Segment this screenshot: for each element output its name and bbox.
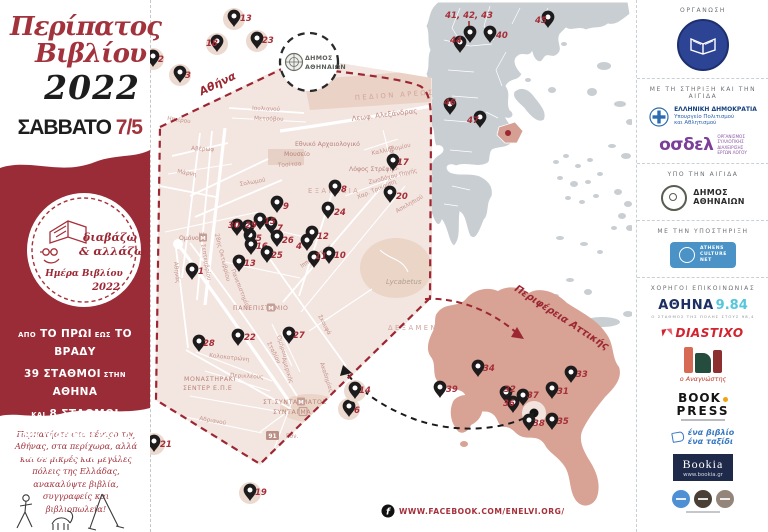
title-line2: Βιβλίου	[0, 41, 146, 68]
map-marker-pin: 23	[246, 30, 274, 52]
marker-number: 13	[244, 259, 256, 269]
athina984-logo: ΑΘΗΝΑ 9.84 Ο ΣΤΑΘΜΟΣ ΤΗΣ ΠΟΛΗΣ ΣΤΟΥΣ 98,…	[651, 298, 754, 319]
promo-line: ΚΑΙ 8 ΣΤΑΘΜΟΙ	[0, 403, 150, 421]
orange-dot-icon	[723, 397, 728, 402]
bookia-logo: Bookia www.bookia.gr	[673, 454, 734, 481]
marker-number: 2	[158, 55, 164, 65]
athens-location-dot	[505, 130, 511, 136]
tagline-bar	[681, 419, 725, 421]
event-date: ΣΑΒΒΑΤΟ 7/5	[0, 116, 146, 140]
marker-number: 38	[533, 419, 545, 429]
organizer-heading: ΟΡΓΑΝΩΣΗ	[680, 7, 726, 14]
anagnostis-mark-icon	[684, 347, 722, 373]
walking-people-sketch	[6, 490, 144, 532]
greek-cross-icon	[649, 107, 669, 127]
marker-number: 15	[264, 217, 276, 227]
street-label: Lycabetus	[386, 278, 422, 286]
promo-text: ΑΠΟ ΤΟ ΠΡΩΙ ΕΩΣ ΤΟ ΒΡΑΔΥ39 ΣΤΑΘΜΟΙ ΣΤΗΝ …	[0, 320, 150, 467]
badge-line4: 2022	[91, 282, 120, 293]
street-label: Μετσόβου	[254, 115, 284, 123]
map-marker-pin: 19	[239, 482, 267, 504]
marker-number: 27	[293, 331, 305, 341]
metro-icon: Μ	[298, 400, 303, 406]
city-of-athens-logo: ΔΗΜΟΣ ΑΘΗΝΑΙΩΝ	[661, 185, 744, 211]
poster-title: Περίπατος Βιβλίου 2022 ΣΑΒΒΑΤΟ 7/5	[0, 14, 146, 140]
street-label: ΣΤ.ΣΥΝΤΑΓΜΑΤΟΣ	[263, 399, 327, 406]
support-heading: ΜΕ ΤΗ ΣΤΗΡΙΞΗ ΚΑΙ ΤΗΝ ΑΙΓΙΔΑ	[637, 86, 768, 100]
city-seal-icon	[661, 185, 687, 211]
street-label: Ιουλιανού	[252, 105, 281, 113]
promo-line: ΓΕΜΑΤΟΙ ΒΙΒΛΙΑ!	[0, 445, 150, 463]
marker-number: 17	[397, 158, 409, 168]
marker-number: 10	[334, 251, 346, 261]
marker-number: 23	[262, 36, 274, 46]
promo-line: ΣΤΗΝ ΥΠΟΛΟΙΠΗ ΕΛΛΑΔΑ	[0, 424, 150, 442]
marker-number: 44	[449, 36, 462, 46]
map-marker-pin: 2	[150, 48, 164, 70]
radio-circles-logo	[672, 490, 734, 508]
osdel-logo: οσδελ ΟΡΓΑΝΙΣΜΟΣ ΣΥΛΛΟΓΙΚΗΣ ΔΙΑΧΕΙΡΙΣΗΣ …	[659, 134, 747, 156]
facebook-url: WWW.FACEBOOK.COM/ENELVI.ORG/	[399, 507, 565, 516]
marker-number: 1	[198, 267, 204, 277]
divider	[637, 220, 768, 221]
marker-number: 25	[271, 251, 283, 261]
divider	[637, 277, 768, 278]
blue-circle-icon	[672, 490, 690, 508]
marker-number: 29	[245, 221, 257, 231]
marker-number: 36	[503, 399, 515, 409]
divider	[637, 78, 768, 79]
map-panel: ΠΕΔΙΟΝ ΑΡΕΩΣΛεωφ. ΑλεξάνδραςΕθνικό Αρχαι…	[150, 0, 632, 532]
map-marker-pin: 21	[150, 433, 172, 455]
ena-vivlio-logo: ένα βιβλίο ένα ταξίδι	[672, 428, 734, 446]
marker-number: 14	[359, 386, 371, 396]
bookpress-line2: PRESS	[677, 405, 730, 417]
athina984-freq: 9.84	[716, 298, 748, 313]
diastixo-name: DIASTIXO	[675, 326, 743, 340]
marker-number: 3	[185, 71, 191, 81]
city-line2: ΑΘΗΝΑΙΩΝ	[693, 198, 744, 207]
street-label: Αβέρωφ	[191, 145, 215, 153]
title-line1: Περίπατος	[0, 14, 146, 41]
title-year: 2022	[0, 71, 146, 104]
marker-number: 9	[283, 202, 289, 212]
divider	[637, 163, 768, 164]
street-label: Εθνικό Αρχαιολογικό	[295, 140, 360, 148]
marker-number: 40	[495, 31, 508, 41]
athens-culture-net-logo: ATHENS CULTURE NET	[670, 242, 736, 268]
promo-line: 39 ΣΤΑΘΜΟΙ ΣΤΗΝ ΑΘΗΝΑ	[0, 363, 150, 400]
event-day: ΣΑΒΒΑΤΟ	[18, 116, 111, 139]
marker-number: 12	[317, 232, 329, 242]
ministry-logo: ΕΛΛΗΝΙΚΗ ΔΗΜΟΚΡΑΤΙΑ Υπουργείο Πολιτισμού…	[649, 106, 757, 127]
marker-number: 39	[446, 385, 458, 395]
book-walk-poster: διαβάζω & αλλάζω Ημέρα Βιβλίου 2022 Περί…	[0, 0, 768, 532]
marker-number: 31	[557, 387, 569, 397]
anagnostis-logo: ο Αναγνώστης	[680, 347, 727, 383]
marker-number: 32	[504, 385, 516, 395]
metro-icon: Μ	[268, 306, 273, 312]
street-label: Μουσείο	[284, 150, 310, 158]
marker-number: 33	[576, 370, 588, 380]
ministry-line1: ΕΛΛΗΝΙΚΗ ΔΗΜΟΚΡΑΤΙΑ	[674, 106, 757, 114]
marker-number: 46	[443, 98, 456, 108]
marker-number: 37	[527, 391, 539, 401]
osdel-line4: ΕΡΓΩΝ ΛΟΓΟΥ	[717, 150, 747, 155]
map-marker-pin: 14	[344, 380, 371, 402]
aegis-heading: ΥΠΟ ΤΗΝ ΑΙΓΙΔΑ	[668, 171, 739, 178]
open-book-icon	[689, 35, 717, 55]
bookpress-line1: BOOK	[678, 391, 721, 405]
book-icon	[662, 329, 673, 337]
marker-number: 4	[295, 242, 302, 252]
municipality-name-line2: ΑΘΗΝΑΙΩΝ	[305, 64, 346, 71]
support2-heading: ΜΕ ΤΗΝ ΥΠΟΣΤΗΡΙΞΗ	[657, 228, 748, 235]
street-label: ΜΟΝΑΣΤΗΡΑΚΙ	[184, 376, 236, 383]
athina984-name: ΑΘΗΝΑ	[658, 298, 713, 313]
map-marker-pin: 3	[169, 64, 191, 86]
attica-region-map: Περιφέρεια Αττικής 313233343536373839	[428, 283, 620, 506]
marker-number: 11	[315, 252, 327, 262]
marker-number: 22	[244, 333, 256, 343]
municipality-name-line1: ΔΗΜΟΣ	[305, 55, 333, 62]
bookpress-logo: BOOK PRESS	[677, 389, 730, 421]
diastixo-logo: DIASTIXO	[662, 326, 743, 340]
marker-number: 13	[240, 14, 252, 24]
ena-vivlio-line2: ένα ταξίδι	[688, 437, 734, 446]
bookia-name: Bookia	[683, 457, 724, 472]
ministry-line3: και Αθλητισμού	[674, 120, 757, 127]
osdel-name: οσδελ	[659, 135, 713, 155]
metro-icon: Μ	[200, 236, 205, 242]
marker-number: 21	[160, 440, 172, 450]
marker-number: 8	[341, 185, 347, 195]
athina984-tagline: Ο ΣΤΑΘΜΟΣ ΤΗΣ ΠΟΛΗΣ ΣΤΟΥΣ 98,4	[651, 314, 754, 319]
caption-bar	[686, 511, 720, 513]
marker-number: 24	[334, 208, 346, 218]
aegean-islands	[525, 17, 632, 327]
street-label: ΠΑΝΕΠΙΣΤΗΜΙΟ	[233, 305, 288, 312]
map-marker-pin: 18	[206, 33, 228, 55]
marker-number: 20	[396, 192, 408, 202]
taupe-circle-icon	[716, 490, 734, 508]
map-svg: ΠΕΔΙΟΝ ΑΡΕΩΣΛεωφ. ΑλεξάνδραςΕθνικό Αρχαι…	[150, 0, 632, 532]
marker-number: 28	[203, 339, 215, 349]
road-91-badge: 91	[268, 433, 276, 440]
map-marker-pin: 13	[223, 8, 252, 30]
enelvi-logo	[677, 19, 729, 71]
blue-book-icon	[671, 431, 685, 443]
marker-number: 26	[282, 236, 294, 246]
bookia-url: www.bookia.gr	[683, 472, 724, 478]
marker-number: 19	[255, 488, 267, 498]
badge-line2: & αλλάζω	[79, 244, 145, 258]
marker-number: 45	[534, 16, 547, 26]
media-heading: ΧΟΡΗΓΟΙ ΕΠΙΚΟΙΝΩΝΙΑΣ	[651, 285, 755, 292]
acn-emblem-icon	[679, 247, 695, 263]
street-label: ΣΕΝΤΕΡ Ε.Π.Ε	[183, 385, 232, 392]
anagnostis-name: ο Αναγνώστης	[680, 375, 727, 383]
acn-line3: NET	[700, 258, 727, 264]
marker-number: 35	[557, 417, 569, 427]
acn-line2: CULTURE	[700, 252, 727, 258]
event-date-value: 7/5	[116, 116, 142, 139]
marker-number: 47	[466, 116, 479, 126]
facebook-line: f WWW.FACEBOOK.COM/ENELVI.ORG/	[382, 505, 565, 518]
lycabettus-hill	[360, 238, 432, 298]
marker-number: 30	[228, 221, 240, 231]
evia-island	[514, 89, 545, 122]
greece-map	[426, 2, 632, 327]
badge-line1: διαβάζω	[82, 231, 137, 244]
marker-number: 18	[206, 39, 218, 49]
cluster-annotation: 41, 42, 43	[444, 11, 493, 21]
left-panel: διαβάζω & αλλάζω Ημέρα Βιβλίου 2022 Περί…	[0, 0, 151, 532]
athens-detail-map: ΠΕΔΙΟΝ ΑΡΕΩΣΛεωφ. ΑλεξάνδραςΕθνικό Αρχαι…	[155, 63, 445, 465]
brown-circle-icon	[694, 490, 712, 508]
street-label: Λόφος Στρέφη	[349, 165, 393, 173]
marker-number: 34	[483, 364, 495, 374]
badge-line3: Ημέρα Βιβλίου	[44, 268, 123, 279]
promo-line: ΑΠΟ ΤΟ ΠΡΩΙ ΕΩΣ ΤΟ ΒΡΑΔΥ	[0, 323, 150, 360]
sponsors-panel: ΟΡΓΑΝΩΣΗ ΜΕ ΤΗ ΣΤΗΡΙΞΗ ΚΑΙ ΤΗΝ ΑΙΓΙΔΑ ΕΛ…	[636, 0, 768, 532]
ena-vivlio-line1: ένα βιβλίο	[688, 428, 734, 437]
marker-number: 6	[354, 406, 360, 416]
